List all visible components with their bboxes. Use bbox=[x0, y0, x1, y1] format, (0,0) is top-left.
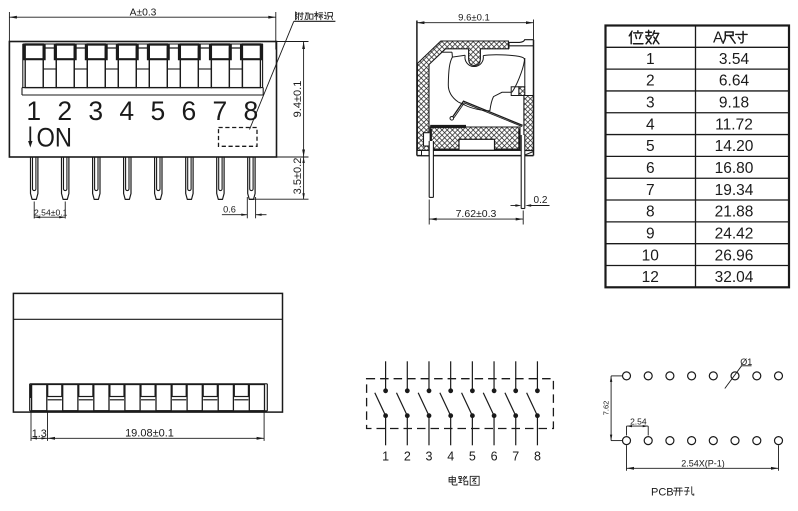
svg-text:5: 5 bbox=[150, 96, 165, 126]
svg-text:3.54: 3.54 bbox=[719, 51, 750, 68]
svg-text:1: 1 bbox=[646, 51, 655, 68]
svg-text:32.04: 32.04 bbox=[715, 269, 754, 286]
svg-text:PCB: PCB bbox=[651, 486, 674, 498]
svg-text:5: 5 bbox=[646, 138, 655, 155]
svg-text:ON: ON bbox=[37, 122, 73, 152]
svg-text:7: 7 bbox=[646, 182, 655, 199]
svg-text:24.42: 24.42 bbox=[715, 225, 754, 242]
svg-text:8: 8 bbox=[534, 450, 541, 464]
svg-text:5: 5 bbox=[469, 450, 476, 464]
svg-text:1: 1 bbox=[382, 450, 389, 464]
svg-text:1.3: 1.3 bbox=[32, 428, 47, 440]
svg-text:8: 8 bbox=[646, 204, 655, 221]
svg-text:3: 3 bbox=[88, 96, 103, 126]
svg-text:9.6±0.1: 9.6±0.1 bbox=[458, 13, 490, 24]
svg-text:14.20: 14.20 bbox=[715, 138, 754, 155]
svg-text:6: 6 bbox=[181, 96, 196, 126]
svg-text:4: 4 bbox=[119, 96, 134, 126]
svg-text:4: 4 bbox=[447, 450, 454, 464]
svg-text:26.96: 26.96 bbox=[715, 247, 754, 264]
svg-text:0.6: 0.6 bbox=[223, 204, 236, 214]
svg-text:11.72: 11.72 bbox=[715, 116, 753, 133]
svg-text:6.64: 6.64 bbox=[719, 73, 750, 90]
svg-text:21.88: 21.88 bbox=[715, 204, 754, 221]
svg-text:6: 6 bbox=[491, 450, 498, 464]
svg-text:2: 2 bbox=[404, 450, 411, 464]
svg-text:7.62±0.3: 7.62±0.3 bbox=[456, 208, 497, 220]
svg-text:3: 3 bbox=[426, 450, 433, 464]
svg-text:6: 6 bbox=[646, 160, 655, 177]
svg-text:9.18: 9.18 bbox=[719, 95, 749, 112]
svg-text:12: 12 bbox=[642, 269, 659, 286]
svg-text:A±0.3: A±0.3 bbox=[130, 7, 157, 18]
svg-text:2: 2 bbox=[646, 73, 655, 90]
svg-text:10: 10 bbox=[642, 247, 660, 264]
svg-text:3.5±0.2: 3.5±0.2 bbox=[292, 158, 304, 195]
svg-text:7: 7 bbox=[213, 96, 228, 126]
svg-text:8: 8 bbox=[244, 96, 259, 126]
svg-text:0.2: 0.2 bbox=[534, 195, 548, 206]
svg-text:A: A bbox=[713, 29, 724, 46]
svg-text:19.34: 19.34 bbox=[715, 182, 754, 199]
svg-text:2.54: 2.54 bbox=[630, 416, 647, 426]
svg-text:7.62: 7.62 bbox=[602, 401, 611, 416]
svg-text:2.54±0.1: 2.54±0.1 bbox=[34, 207, 68, 217]
svg-text:9.4±0.1: 9.4±0.1 bbox=[292, 81, 304, 118]
svg-text:16.80: 16.80 bbox=[715, 160, 754, 177]
svg-text:4: 4 bbox=[646, 116, 655, 133]
svg-text:7: 7 bbox=[512, 450, 519, 464]
svg-text:19.08±0.1: 19.08±0.1 bbox=[125, 427, 174, 439]
svg-text:3: 3 bbox=[646, 95, 655, 112]
svg-text:9: 9 bbox=[646, 225, 655, 242]
svg-text:2.54X(P-1): 2.54X(P-1) bbox=[681, 458, 725, 468]
